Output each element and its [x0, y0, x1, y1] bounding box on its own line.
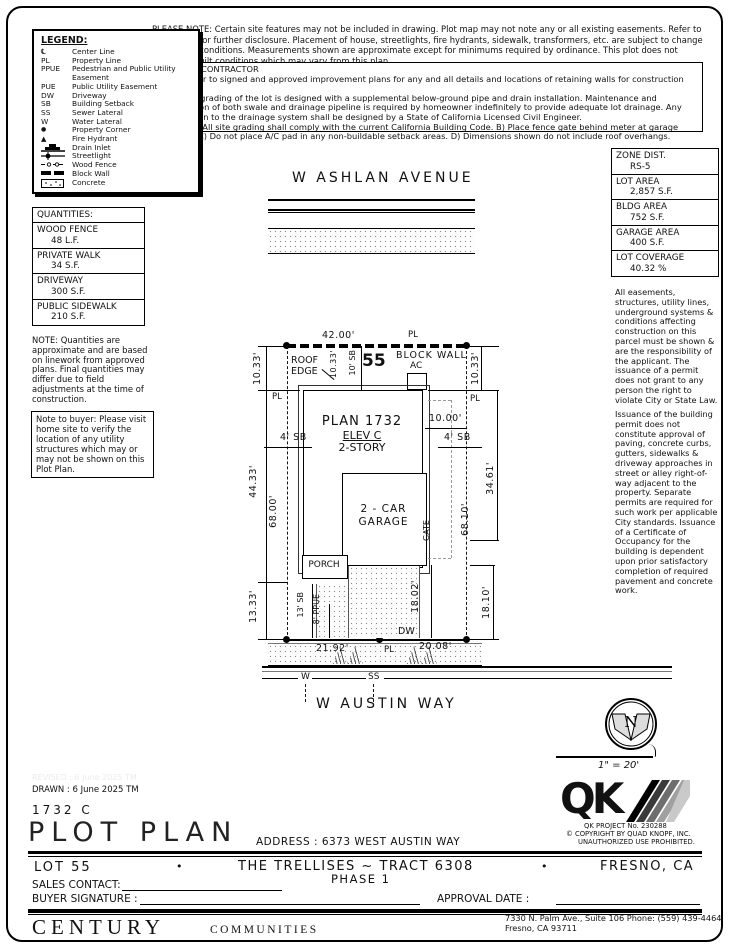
driveway-label: DW [398, 626, 415, 637]
contractor-note-p3: NOTES: A) All site grading shall comply … [157, 123, 696, 142]
dim-frontage-left: 21.92' [316, 643, 349, 654]
dim-line [497, 390, 498, 540]
property-corner-icon: ● [41, 126, 72, 135]
sheet-title: PLOT PLAN [28, 817, 238, 848]
dim-line [493, 565, 494, 639]
story-label: 2-STORY [303, 441, 421, 454]
wood-fence-icon [41, 161, 72, 168]
sales-contact-label: SALES CONTACT: [32, 879, 121, 891]
dim-offset-right: 10.00' [429, 413, 462, 424]
quantity-row: WOOD FENCE48 L.F. [32, 222, 145, 249]
zoning-row: GARAGE AREA400 S.F. [611, 225, 719, 252]
water-symbol: W [41, 118, 72, 127]
lot-number: 55 [362, 351, 386, 371]
drain-inlet-icon [41, 144, 72, 152]
zoning-row: LOT AREA2,857 S.F. [611, 174, 719, 201]
pl-label-right: PL [470, 394, 480, 404]
dim-line [425, 428, 467, 429]
dim-tick [467, 346, 499, 347]
dim-side-setback-left: 4' SB [280, 432, 307, 443]
dim-rear-setback: 13' SB [296, 592, 305, 618]
zoning-row: LOT COVERAGE40.32 % [611, 250, 719, 277]
street-name-austin: W AUSTIN WAY [316, 696, 457, 712]
sewer-lateral-label: SS [368, 672, 379, 682]
legend: LEGEND: ℄Center Line PLProperty Line PPU… [32, 29, 200, 194]
fire-hydrant-icon: ▲ [41, 135, 72, 144]
dim-tick [258, 390, 300, 391]
separator-bullet: • [176, 860, 183, 873]
plan-label: PLAN 1732 [303, 414, 421, 429]
dim-tick [470, 540, 499, 541]
city-note-2: Issuance of the building permit does not… [615, 410, 718, 596]
pl-label-front: PL [384, 645, 394, 655]
drawn-line: DRAWN : 6 June 2025 TM [32, 785, 139, 795]
phase-label: PHASE 1 [331, 872, 391, 886]
office-address-line1: 7330 N. Palm Ave., Suite 106 Phone: (559… [505, 913, 722, 923]
qk-logo-stripes [626, 778, 690, 822]
block-wall-line [287, 344, 467, 348]
buyer-signature-label: BUYER SIGNATURE : [32, 893, 138, 905]
city-note-1: All easements, structures, utility lines… [615, 288, 718, 406]
water-lateral-label: W [301, 672, 310, 682]
dim-ppue: 8' PPUE [312, 594, 321, 624]
garage-label-line2: GARAGE [342, 516, 425, 528]
qk-unauthorized: UNAUTHORIZED USE PROHIBITED. [578, 838, 695, 846]
dim-line [481, 346, 482, 390]
lot-label: LOT 55 [34, 860, 92, 875]
please-note: PLEASE NOTE: Certain site features may n… [152, 24, 704, 66]
dim-roof-offset: 10.33' [329, 350, 338, 378]
contractor-note-p1: Please refer to signed and approved impr… [157, 75, 696, 94]
separator-bullet: • [541, 860, 548, 873]
buyer-note-box: Note to buyer: Please visit home site to… [31, 411, 154, 478]
utility-line [384, 678, 672, 679]
sidewalk-ashlan [268, 228, 475, 254]
zoning-row: ZONE DIST.RS-5 [611, 148, 719, 175]
dim-lot-depth-left: 68.00' [268, 495, 279, 528]
dim-line [264, 447, 312, 448]
street-name-ashlan: W ASHLAN AVENUE [292, 170, 474, 186]
quantities-note: NOTE: Quantities are approximate and are… [32, 336, 154, 405]
brand-communities: COMMUNITIES [210, 924, 319, 936]
road-line [262, 671, 672, 672]
dim-right-bottom: 18.10' [481, 586, 492, 619]
water-lateral-dash [305, 684, 306, 702]
dim-line [329, 604, 330, 638]
dim-front-setback: 10' SB [348, 350, 357, 376]
dim-tick [467, 639, 499, 640]
qk-project-number: QK PROJECT No. 230288 [584, 822, 667, 830]
pl-label-left: PL [272, 392, 282, 402]
dim-tick [258, 639, 287, 640]
plot-plan-sheet: PLEASE NOTE: Certain site features may n… [0, 0, 730, 947]
dim-frontage-total: 42.00' [322, 330, 355, 341]
sales-contact-line [122, 890, 282, 891]
dim-tick [258, 582, 287, 583]
qk-copyright: © COPYRIGHT BY QUAD KNOPF, INC. [566, 830, 691, 838]
address-line: ADDRESS : 6373 WEST AUSTIN WAY [256, 836, 460, 848]
setback-dash-bottom [428, 558, 451, 559]
legend-title: LEGEND: [41, 35, 193, 46]
dim-tick [258, 346, 287, 347]
dim-right-top: 10.33' [470, 352, 481, 385]
road-line [268, 209, 475, 211]
quantity-row: PUBLIC SIDEWALK210 S.F. [32, 299, 145, 326]
dim-tick [470, 565, 495, 566]
contractor-note-p2: The finish grading of the lot is designe… [157, 94, 696, 123]
approval-date-line [556, 904, 700, 905]
scale-label: 1" = 20' [598, 760, 639, 771]
qk-logo: QK [560, 774, 620, 823]
dim-line [431, 565, 432, 638]
title-rule [28, 856, 702, 857]
dim-left-mid: 44.33' [248, 465, 259, 498]
title-rule [28, 851, 702, 854]
quantity-row: PRIVATE WALK34 S.F. [32, 248, 145, 275]
office-address-line2: Fresno, CA 93711 [505, 923, 577, 933]
road-line [268, 212, 475, 213]
dim-driveway-depth: 18.02' [410, 580, 421, 613]
ppue-symbol: PPUE [41, 65, 72, 74]
dim-line [438, 447, 482, 448]
utility-line [262, 678, 298, 679]
plan-code: 1732 C [32, 803, 93, 817]
svg-text:N: N [624, 713, 637, 731]
north-arrow: N [604, 697, 658, 751]
quantity-row: DRIVEWAY300 S.F. [32, 273, 145, 300]
zoning-row: BLDG AREA752 S.F. [611, 199, 719, 226]
dim-left-bottom: 13.33' [248, 590, 259, 623]
buyer-signature-line [140, 904, 420, 905]
quantities-table: QUANTITIES: WOOD FENCE48 L.F. PRIVATE WA… [32, 209, 145, 326]
dim-left-top: 10.33' [252, 352, 263, 385]
setback-dash-top [428, 400, 451, 401]
gate-label: GATE [422, 520, 431, 541]
concrete-icon [41, 179, 72, 188]
dim-right-mid: 34.61' [485, 462, 496, 495]
zoning-table: ZONE DIST.RS-5 LOT AREA2,857 S.F. BLDG A… [611, 150, 719, 277]
dim-frontage-right: 20.08' [419, 641, 452, 652]
approval-date-label: APPROVAL DATE : [437, 893, 529, 905]
contractor-note-box: *NOTE TO CONTRACTOR Please refer to sign… [150, 62, 703, 132]
brand-century: CENTURY [32, 915, 165, 940]
revised-line: REVISED : 6 June 2025 TM [32, 773, 137, 782]
scale-bar [556, 756, 653, 758]
porch-label: PORCH [302, 560, 346, 570]
dim-line [361, 346, 362, 390]
block-wall-label: BLOCK WALL [396, 350, 467, 361]
road-line [268, 199, 475, 201]
utility-line [312, 678, 366, 679]
ac-label: AC [410, 361, 422, 371]
dim-side-setback-right: 4' SB [444, 432, 471, 443]
footer-rule [28, 909, 702, 913]
pl-label-top: PL [408, 330, 418, 340]
garage-label-line1: 2 - CAR [342, 503, 425, 515]
dim-lot-depth-right: 68.10' [460, 503, 471, 536]
streetlight-icon [41, 152, 72, 160]
city-label: FRESNO, CA [600, 859, 694, 874]
block-wall-icon [41, 170, 72, 176]
road-line [262, 666, 672, 668]
dim-tick [428, 390, 499, 391]
